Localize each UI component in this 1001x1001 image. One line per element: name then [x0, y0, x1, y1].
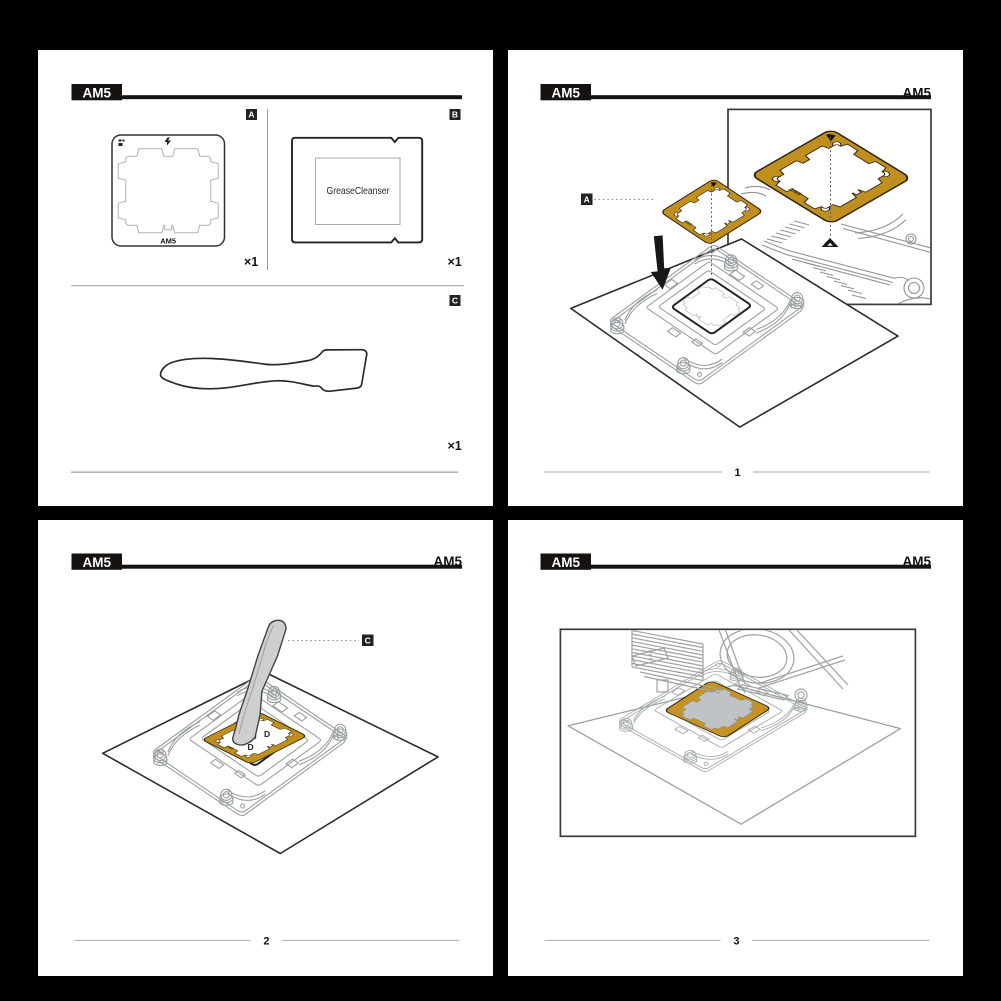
- svg-text:GreaseCleanser: GreaseCleanser: [327, 185, 390, 197]
- svg-text:AM5: AM5: [902, 554, 931, 569]
- svg-text:AM5: AM5: [552, 555, 581, 570]
- svg-text:2: 2: [263, 935, 269, 947]
- svg-text:AM5: AM5: [552, 86, 581, 101]
- svg-text:AM5: AM5: [160, 237, 176, 246]
- svg-text:C: C: [452, 296, 458, 306]
- svg-text:D: D: [264, 729, 270, 739]
- svg-text:3: 3: [733, 935, 739, 947]
- svg-text:C: C: [365, 636, 371, 646]
- svg-text:B: B: [452, 110, 458, 120]
- svg-text:AM5: AM5: [83, 555, 112, 570]
- svg-text:×1: ×1: [448, 439, 462, 453]
- svg-text:AM5: AM5: [433, 554, 462, 569]
- svg-text:AM5: AM5: [902, 86, 931, 101]
- svg-text:×1: ×1: [448, 255, 462, 269]
- svg-text:AM5: AM5: [83, 86, 112, 101]
- svg-text:A: A: [248, 110, 254, 120]
- svg-text:1: 1: [734, 467, 740, 479]
- svg-text:×1: ×1: [244, 255, 258, 269]
- svg-text:A: A: [584, 195, 590, 205]
